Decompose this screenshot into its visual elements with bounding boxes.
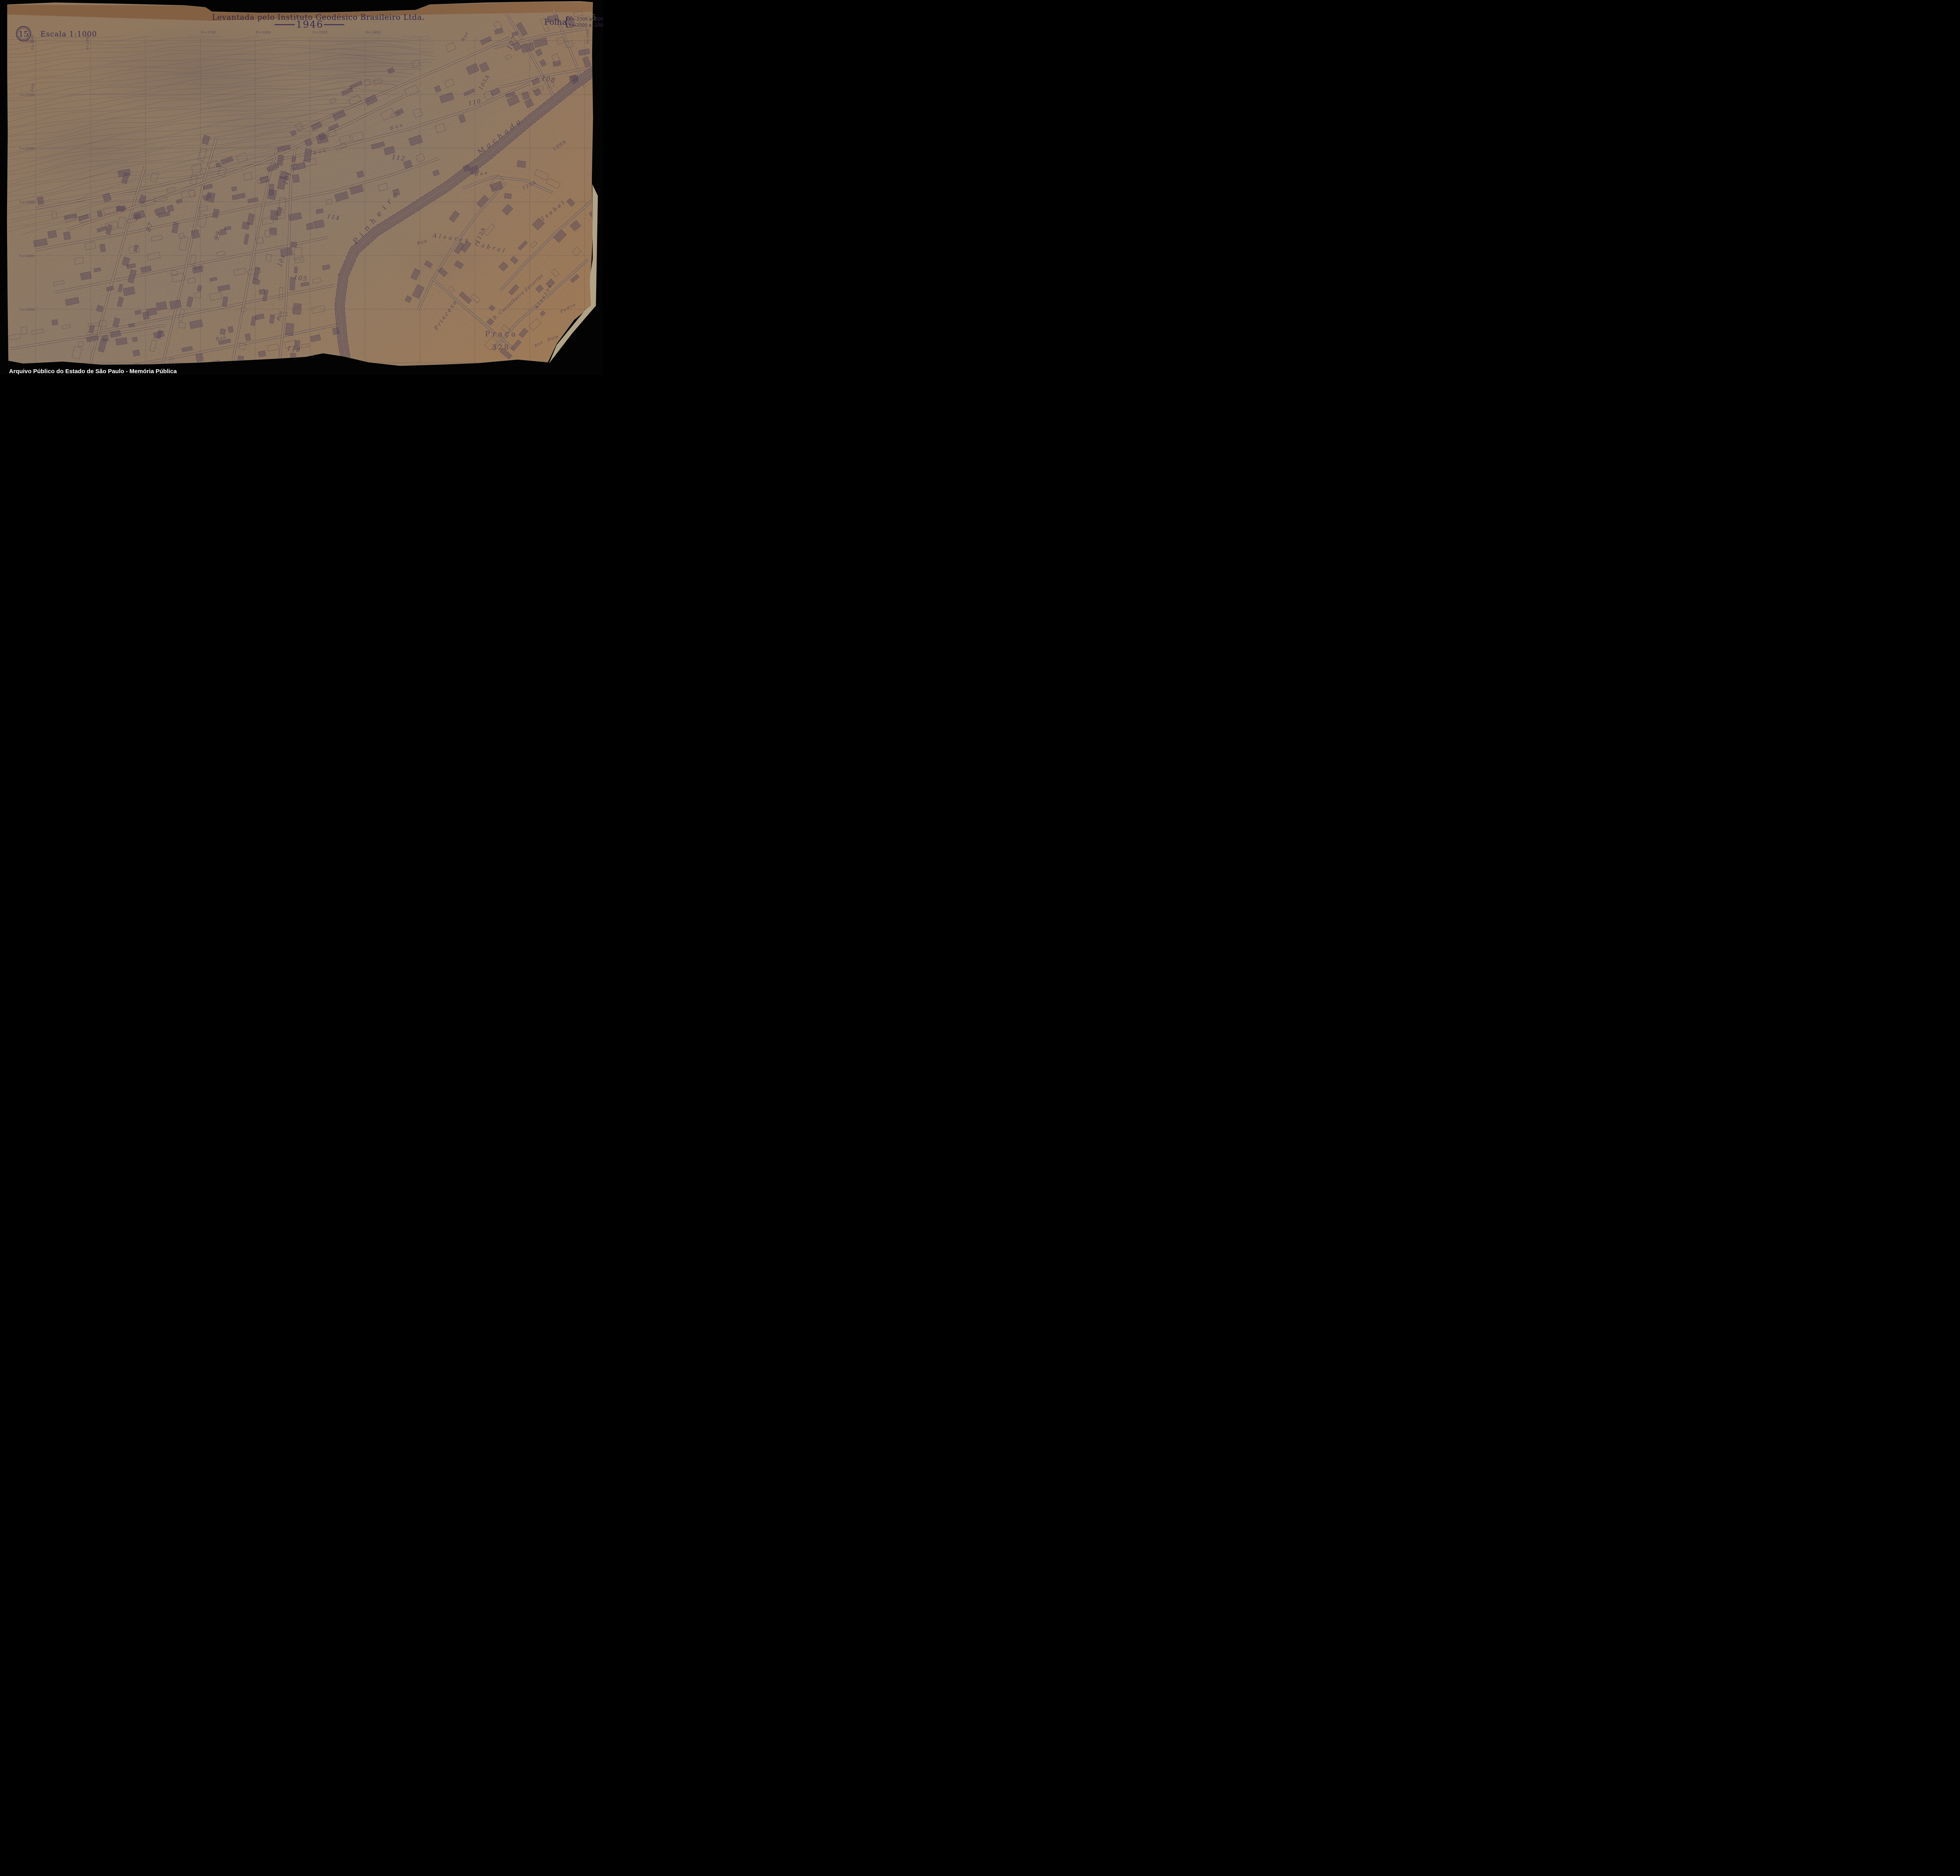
survey-year: 1946 — [296, 18, 323, 30]
paper-grain — [7, 2, 593, 366]
archive-caption: Arquivo Público do Estado de São Paulo -… — [9, 368, 177, 375]
scanned-map-sheet: X=-2000X=-1900X=-1700X=-1600X=-1500X=-14… — [0, 0, 603, 375]
sheet-number-seal: 15 — [18, 29, 28, 39]
scale-label: Escala 1:1000 — [40, 30, 97, 38]
map-artwork: X=-2000X=-1900X=-1700X=-1600X=-1500X=-14… — [4, 0, 603, 375]
map-canvas: X=-2000X=-1900X=-1700X=-1600X=-1500X=-14… — [0, 0, 603, 375]
